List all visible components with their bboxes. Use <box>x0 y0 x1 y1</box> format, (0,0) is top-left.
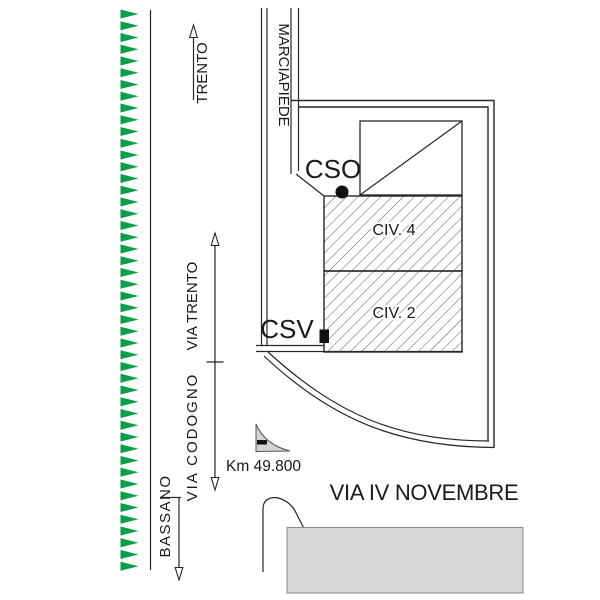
csv-signal-square <box>320 330 330 344</box>
railway-tick-icon <box>121 256 139 265</box>
railway-tick-icon <box>121 480 139 489</box>
railway-tick-icon <box>121 268 139 277</box>
railway-tick-icon <box>121 562 139 571</box>
railway-tick-icon <box>121 421 139 430</box>
railway-tick-icon <box>121 339 139 348</box>
railway-tick-icon <box>121 233 139 242</box>
railway-tick-icon <box>121 456 139 465</box>
trento-label: TRENTO <box>194 42 211 103</box>
railway-tick-icon <box>121 57 139 66</box>
via-iv-novembre-area: VIA IV NOVEMBRE <box>263 480 523 593</box>
railway-tick-icon <box>121 280 139 289</box>
bassano-label: BASSANO <box>157 474 174 557</box>
building-block-south <box>287 528 523 594</box>
railway-tick-icon <box>121 538 139 547</box>
railway-tick-icon <box>121 33 139 42</box>
railway-tick-icon <box>121 174 139 183</box>
railway-tick-icon <box>121 115 139 124</box>
railway-tick-icon <box>121 139 139 148</box>
railway-tick-icon <box>121 292 139 301</box>
railway-tick-icon <box>121 491 139 500</box>
civ2-label: CIV. 2 <box>373 305 416 322</box>
km-marker-dash <box>257 440 267 445</box>
cso-label: CSO <box>305 154 361 184</box>
cso-signal-dot <box>336 186 349 199</box>
railway-tick-icon <box>121 386 139 395</box>
marciapiede-label: MARCIAPIEDE <box>275 23 292 126</box>
railway-tick-icon <box>121 315 139 324</box>
railway-tick-icon <box>121 209 139 218</box>
railway-tick-icon <box>121 303 139 312</box>
railway-tick-icon <box>121 221 139 230</box>
via-trento-direction: VIA TRENTO <box>184 233 224 362</box>
civ4-label: CIV. 4 <box>373 222 416 239</box>
km-marker: Km 49.800 <box>226 424 301 475</box>
railway-tick-icon <box>121 127 139 136</box>
sidewalk-strip: MARCIAPIEDE <box>262 8 299 346</box>
railway-tick-icon <box>121 68 139 77</box>
railway-tick-icon <box>121 362 139 371</box>
railway-tick-icon <box>121 10 139 19</box>
trento-arrow-up-icon <box>190 25 198 38</box>
via-codogno-direction: VIA CODOGNO <box>184 362 219 501</box>
via-codogno-arrow-down-icon <box>211 478 219 491</box>
via-trento-label: VIA TRENTO <box>184 262 201 351</box>
railway-tick-icon <box>121 198 139 207</box>
railway-tick-icon <box>121 374 139 383</box>
bassano-arrow-down-icon <box>175 568 183 581</box>
railway-tick-icon <box>121 80 139 89</box>
railway-tick-icon <box>121 550 139 559</box>
via-codogno-label: VIA CODOGNO <box>184 373 201 502</box>
railway-tick-icon <box>121 503 139 512</box>
trento-direction: TRENTO <box>190 25 211 104</box>
railway-tick-icon <box>121 409 139 418</box>
railway-tick-icon <box>121 45 139 54</box>
site-plan-drawing: TRENTO VIA TRENTO VIA CODOGNO BASSANO MA… <box>0 0 600 600</box>
railway-tick-icon <box>121 327 139 336</box>
railway-tick-icon <box>121 92 139 101</box>
railway-tick-icon <box>121 468 139 477</box>
railway-ticks <box>121 10 139 571</box>
signal-csv: CSV <box>260 314 329 344</box>
driveway-arc-inner <box>268 352 489 441</box>
railway-tick-icon <box>121 104 139 113</box>
railway-tick-icon <box>121 245 139 254</box>
railway-tick-icon <box>121 515 139 524</box>
km-marker-flag-icon <box>256 424 290 452</box>
via-iv-novembre-label: VIA IV NOVEMBRE <box>330 480 519 505</box>
km-label: Km 49.800 <box>226 458 301 475</box>
railway-tick-icon <box>121 21 139 30</box>
railway-tick-icon <box>121 433 139 442</box>
railway-tick-icon <box>121 397 139 406</box>
driveway-arc-outer <box>264 356 494 448</box>
bassano-direction: BASSANO <box>157 474 183 580</box>
csv-label: CSV <box>260 314 314 344</box>
railway-tick-icon <box>121 162 139 171</box>
railway-tick-icon <box>121 444 139 453</box>
site-plan-canvas: TRENTO VIA TRENTO VIA CODOGNO BASSANO MA… <box>0 0 600 600</box>
railway-tick-icon <box>121 186 139 195</box>
via-trento-arrow-up-icon <box>211 233 219 246</box>
railway-tick-icon <box>121 151 139 160</box>
railway-tick-icon <box>121 350 139 359</box>
signal-cso: CSO <box>305 154 361 199</box>
railway-tick-icon <box>121 527 139 536</box>
